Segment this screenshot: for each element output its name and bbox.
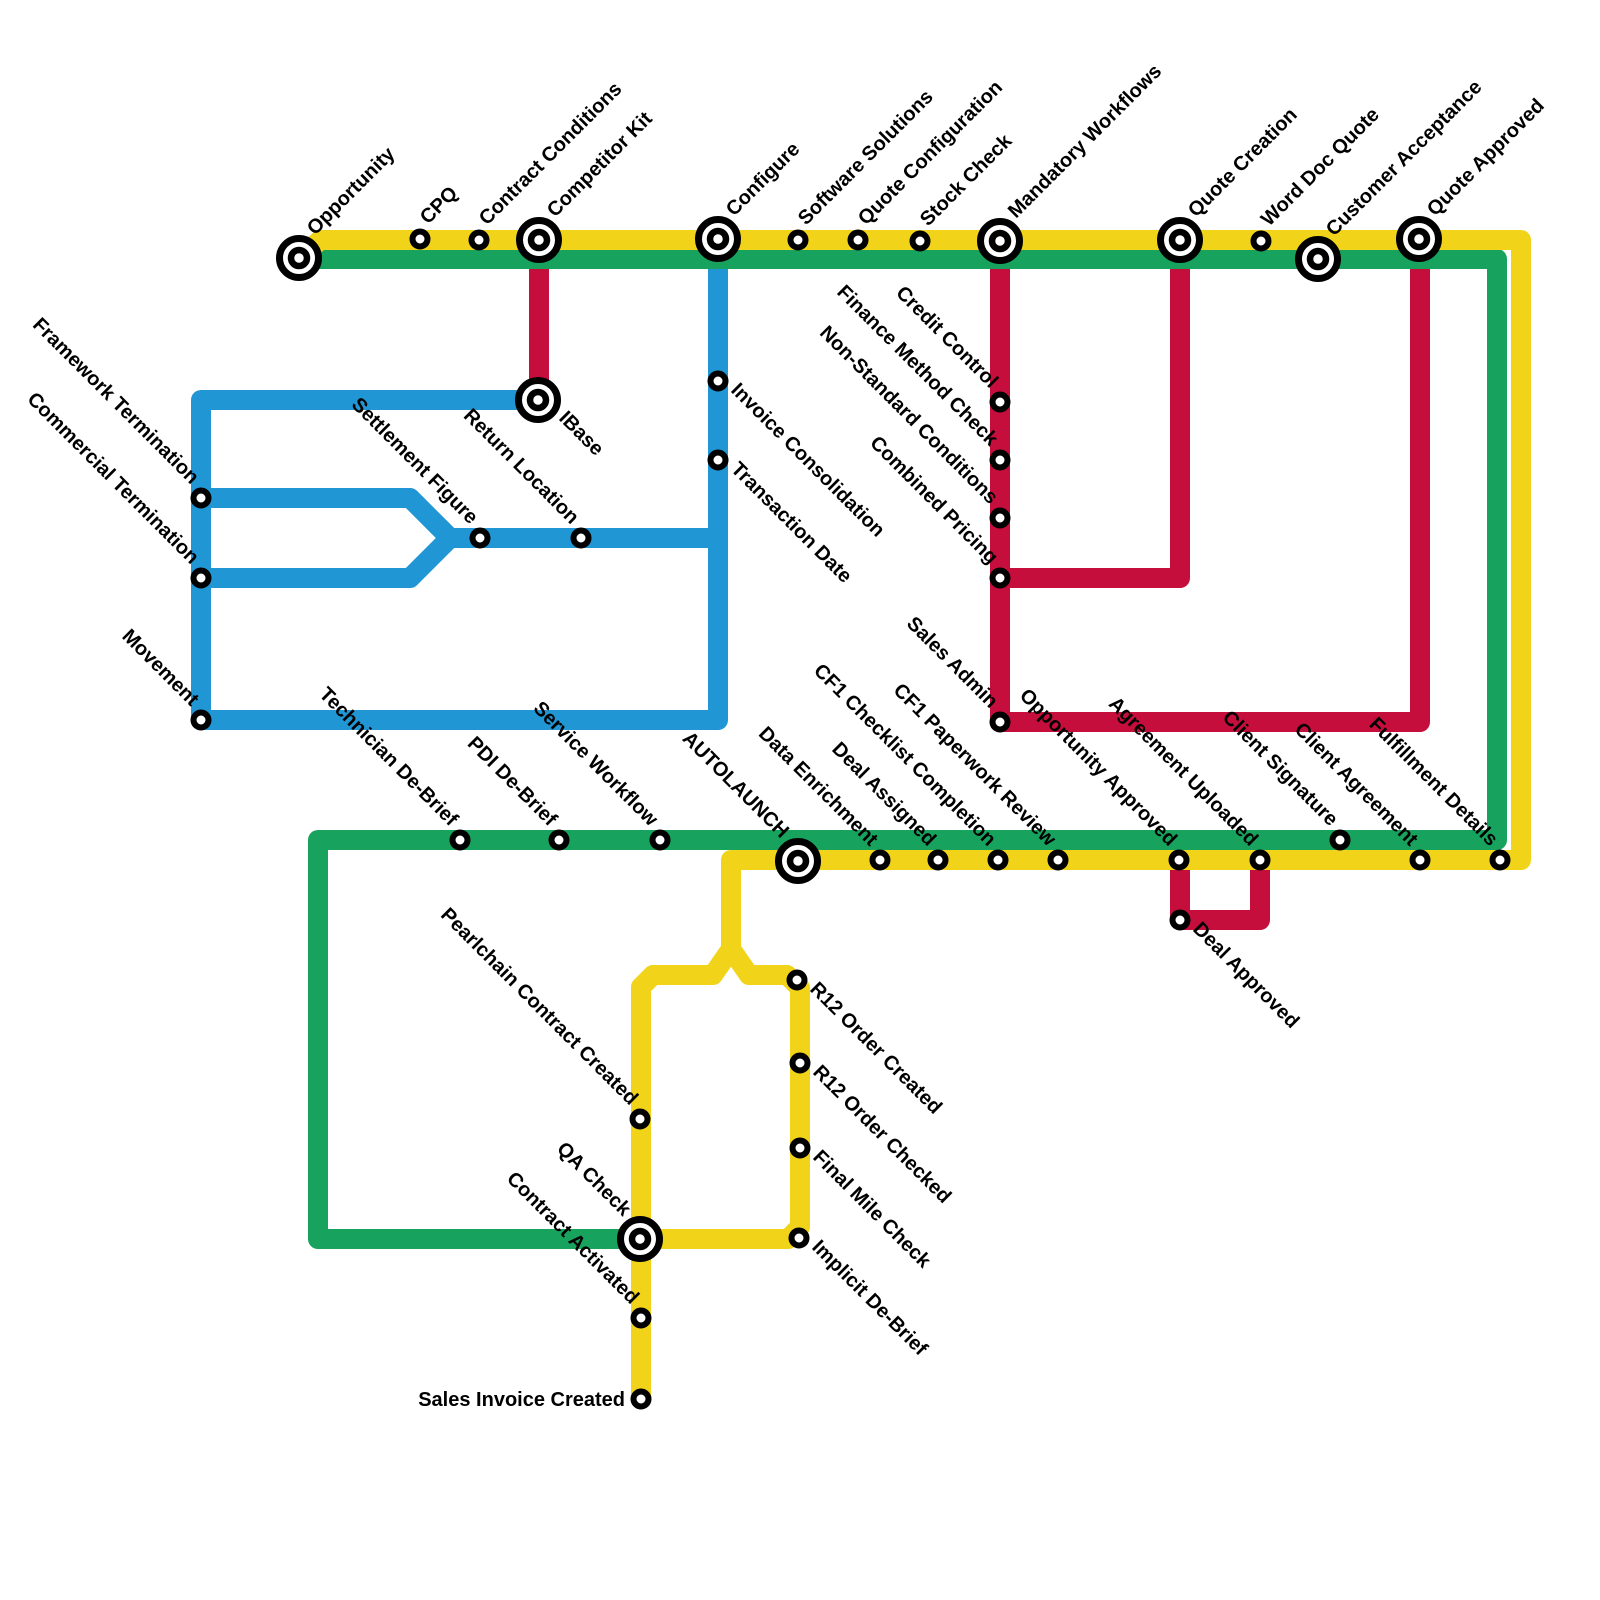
station-marker-fulfillment-details	[1493, 853, 1508, 868]
station-marker-inner-autolaunch	[790, 853, 806, 869]
station-marker-service-workflow	[653, 833, 668, 848]
station-marker-quote-configuration	[851, 233, 866, 248]
station-marker-stock-check	[913, 234, 928, 249]
station-marker-word-doc-quote	[1254, 234, 1269, 249]
station-marker-r12-order-created	[790, 973, 805, 988]
station-marker-contract-conditions	[472, 233, 487, 248]
station-marker-pdi-de-brief	[552, 833, 567, 848]
station-marker-deal-assigned	[931, 853, 946, 868]
station-marker-pearlchain-contract-created	[633, 1112, 648, 1127]
station-marker-opportunity-approved	[1172, 853, 1187, 868]
station-marker-sales-invoice-created	[634, 1392, 649, 1407]
station-marker-client-agreement	[1413, 853, 1428, 868]
station-marker-inner-ibase	[530, 392, 546, 408]
metro-process-map: OpportunityCPQContract ConditionsCompeti…	[0, 0, 1600, 1600]
metro-map-svg: OpportunityCPQContract ConditionsCompeti…	[0, 0, 1600, 1600]
station-marker-inner-opportunity	[291, 250, 307, 266]
station-marker-client-signature	[1333, 833, 1348, 848]
station-marker-cf1-checklist-completion	[991, 853, 1006, 868]
station-marker-inner-mandatory-workflows	[992, 233, 1008, 249]
station-marker-software-solutions	[791, 233, 806, 248]
station-marker-inner-qa-check	[632, 1231, 648, 1247]
station-marker-transaction-date	[711, 453, 726, 468]
station-marker-r12-order-checked	[793, 1056, 808, 1071]
station-marker-final-mile-check	[793, 1141, 808, 1156]
station-marker-movement	[194, 713, 209, 728]
station-marker-data-enrichment	[873, 853, 888, 868]
station-marker-sales-admin	[993, 715, 1008, 730]
station-marker-agreement-uploaded	[1253, 853, 1268, 868]
station-sales-invoice-created: Sales Invoice Created	[418, 1389, 648, 1411]
station-marker-inner-quote-creation	[1172, 232, 1188, 248]
station-label-sales-invoice-created: Sales Invoice Created	[418, 1389, 625, 1411]
station-marker-credit-control	[993, 395, 1008, 410]
station-marker-finance-method-check	[993, 453, 1008, 468]
station-marker-commercial-termination	[194, 571, 209, 586]
station-marker-deal-approved	[1173, 913, 1188, 928]
station-marker-technician-de-brief	[453, 833, 468, 848]
station-marker-non-standard-conditions	[993, 511, 1008, 526]
station-marker-inner-configure	[710, 231, 726, 247]
station-marker-return-location	[574, 531, 589, 546]
station-marker-inner-quote-approved	[1411, 231, 1427, 247]
station-marker-invoice-consolidation	[711, 374, 726, 389]
station-marker-inner-customer-acceptance	[1310, 251, 1326, 267]
station-marker-cf1-paperwork-review	[1051, 853, 1066, 868]
station-marker-implicit-de-brief	[792, 1231, 807, 1246]
station-marker-framework-termination	[194, 491, 209, 506]
station-marker-cpq	[413, 232, 428, 247]
station-marker-combined-pricing	[993, 571, 1008, 586]
station-marker-contract-activated	[634, 1311, 649, 1326]
station-marker-settlement-figure	[473, 531, 488, 546]
station-marker-inner-competitor-kit	[531, 232, 547, 248]
